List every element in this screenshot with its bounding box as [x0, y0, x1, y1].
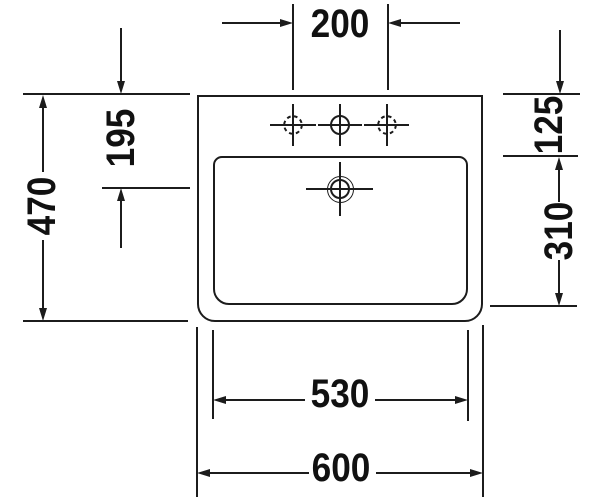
- dim-line-470-lower: [42, 240, 43, 309]
- ext-line-125-top: [503, 93, 580, 94]
- dim-label-bowl-depth: 310: [539, 202, 579, 261]
- dim-arrow-470-bottom: [39, 308, 47, 321]
- dim-label-rim-to-overflow: 195: [101, 109, 141, 168]
- dim-line-200-right: [399, 22, 460, 23]
- ext-line-200-left: [292, 4, 293, 90]
- dim-arrow-310-bottom: [555, 293, 563, 306]
- ext-line-200-right: [387, 4, 388, 90]
- ext-line-530-left: [212, 330, 213, 419]
- dim-arrow-200-left: [280, 19, 293, 27]
- dim-line-310-upper: [558, 169, 559, 202]
- dim-label-overall-width: 600: [312, 448, 371, 488]
- ext-line-470-top: [23, 93, 190, 94]
- ext-line-530-right: [467, 330, 468, 421]
- dim-label-overall-depth: 470: [22, 177, 62, 236]
- dim-arrow-125-top: [556, 81, 564, 94]
- dim-line-200-left: [222, 22, 282, 23]
- tap-hole-center-crosshair-v: [339, 104, 340, 146]
- ext-line-310-bottom: [490, 305, 577, 306]
- ext-line-195-bottom: [102, 187, 190, 188]
- dim-arrow-600-right: [470, 469, 483, 477]
- overflow-crosshair-v: [339, 162, 340, 216]
- dim-arrow-530-left: [213, 396, 226, 404]
- dim-line-125-upper: [559, 30, 560, 82]
- dim-line-600-right: [376, 472, 470, 473]
- dim-line-530-right: [375, 399, 455, 400]
- dim-line-470-upper: [42, 107, 43, 172]
- tap-hole-right-crosshair-v: [386, 104, 387, 146]
- ext-line-470-bottom: [23, 320, 188, 321]
- dim-line-600-left: [210, 472, 309, 473]
- dim-label-rim-to-bowl: 125: [529, 96, 569, 155]
- dim-arrow-200-right: [388, 19, 401, 27]
- dim-line-195-upper: [120, 28, 121, 82]
- dim-label-bowl-width: 530: [311, 374, 370, 414]
- dim-arrow-195-top: [117, 81, 125, 94]
- dim-line-310-lower: [558, 260, 559, 294]
- dim-arrow-600-left: [197, 469, 210, 477]
- dim-line-195-lower: [120, 200, 121, 248]
- ext-line-125-bottom: [503, 155, 578, 156]
- dim-label-tap-hole-spacing: 200: [311, 4, 370, 44]
- washbasin-technical-drawing: 200 470 195 125 310 530 600: [0, 0, 600, 500]
- tap-hole-left-crosshair-v: [292, 104, 293, 146]
- dim-arrow-530-right: [455, 396, 468, 404]
- dim-line-530-left: [226, 399, 305, 400]
